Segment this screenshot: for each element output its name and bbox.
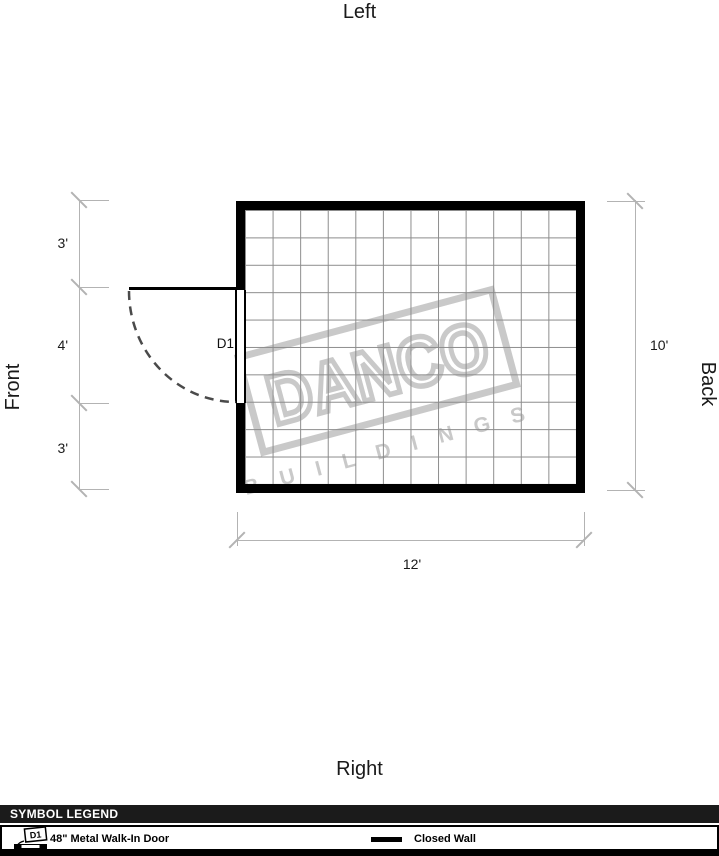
- dim-left-line: [79, 200, 80, 489]
- orientation-label-front: Front: [1, 346, 25, 428]
- orientation-label-bottom: Right: [0, 757, 719, 781]
- orientation-label-back: Back: [696, 343, 719, 425]
- closed-wall-icon: [371, 837, 402, 842]
- legend-body: D1 48" Metal Walk-In Door Closed Wall: [0, 825, 719, 851]
- legend-header: SYMBOL LEGEND: [0, 805, 719, 823]
- dim-label-bottom: 12': [390, 556, 434, 572]
- dim-ext-line: [607, 201, 645, 202]
- dim-bottom-line: [237, 540, 584, 541]
- dim-ext-line: [607, 490, 645, 491]
- dim-right-line: [635, 200, 636, 490]
- dim-ext-line: [79, 403, 109, 404]
- orientation-label-top: Left: [0, 0, 719, 24]
- floor-plan: [236, 201, 585, 493]
- door-label: D1: [192, 337, 234, 351]
- door-leaf: [129, 287, 237, 290]
- door-symbol-label: D1: [29, 829, 41, 840]
- walk-in-door-icon: D1: [14, 827, 48, 849]
- legend-item-wall-label: Closed Wall: [414, 833, 476, 845]
- dim-label-left-3: 3': [28, 440, 68, 456]
- legend-bottom-bar: [0, 851, 719, 856]
- floor-plan-page: Left Right Front Back DANCO BUILDINGS D1…: [0, 0, 719, 856]
- dim-ext-line: [79, 200, 109, 201]
- legend-item-door-label: 48" Metal Walk-In Door: [50, 833, 169, 845]
- dim-label-left-1: 3': [28, 235, 68, 251]
- dim-ext-line: [79, 287, 109, 288]
- legend-title: SYMBOL LEGEND: [0, 805, 719, 823]
- dim-ext-line: [79, 489, 109, 490]
- dim-label-left-2: 4': [28, 337, 68, 353]
- dim-label-right: 10': [650, 337, 668, 353]
